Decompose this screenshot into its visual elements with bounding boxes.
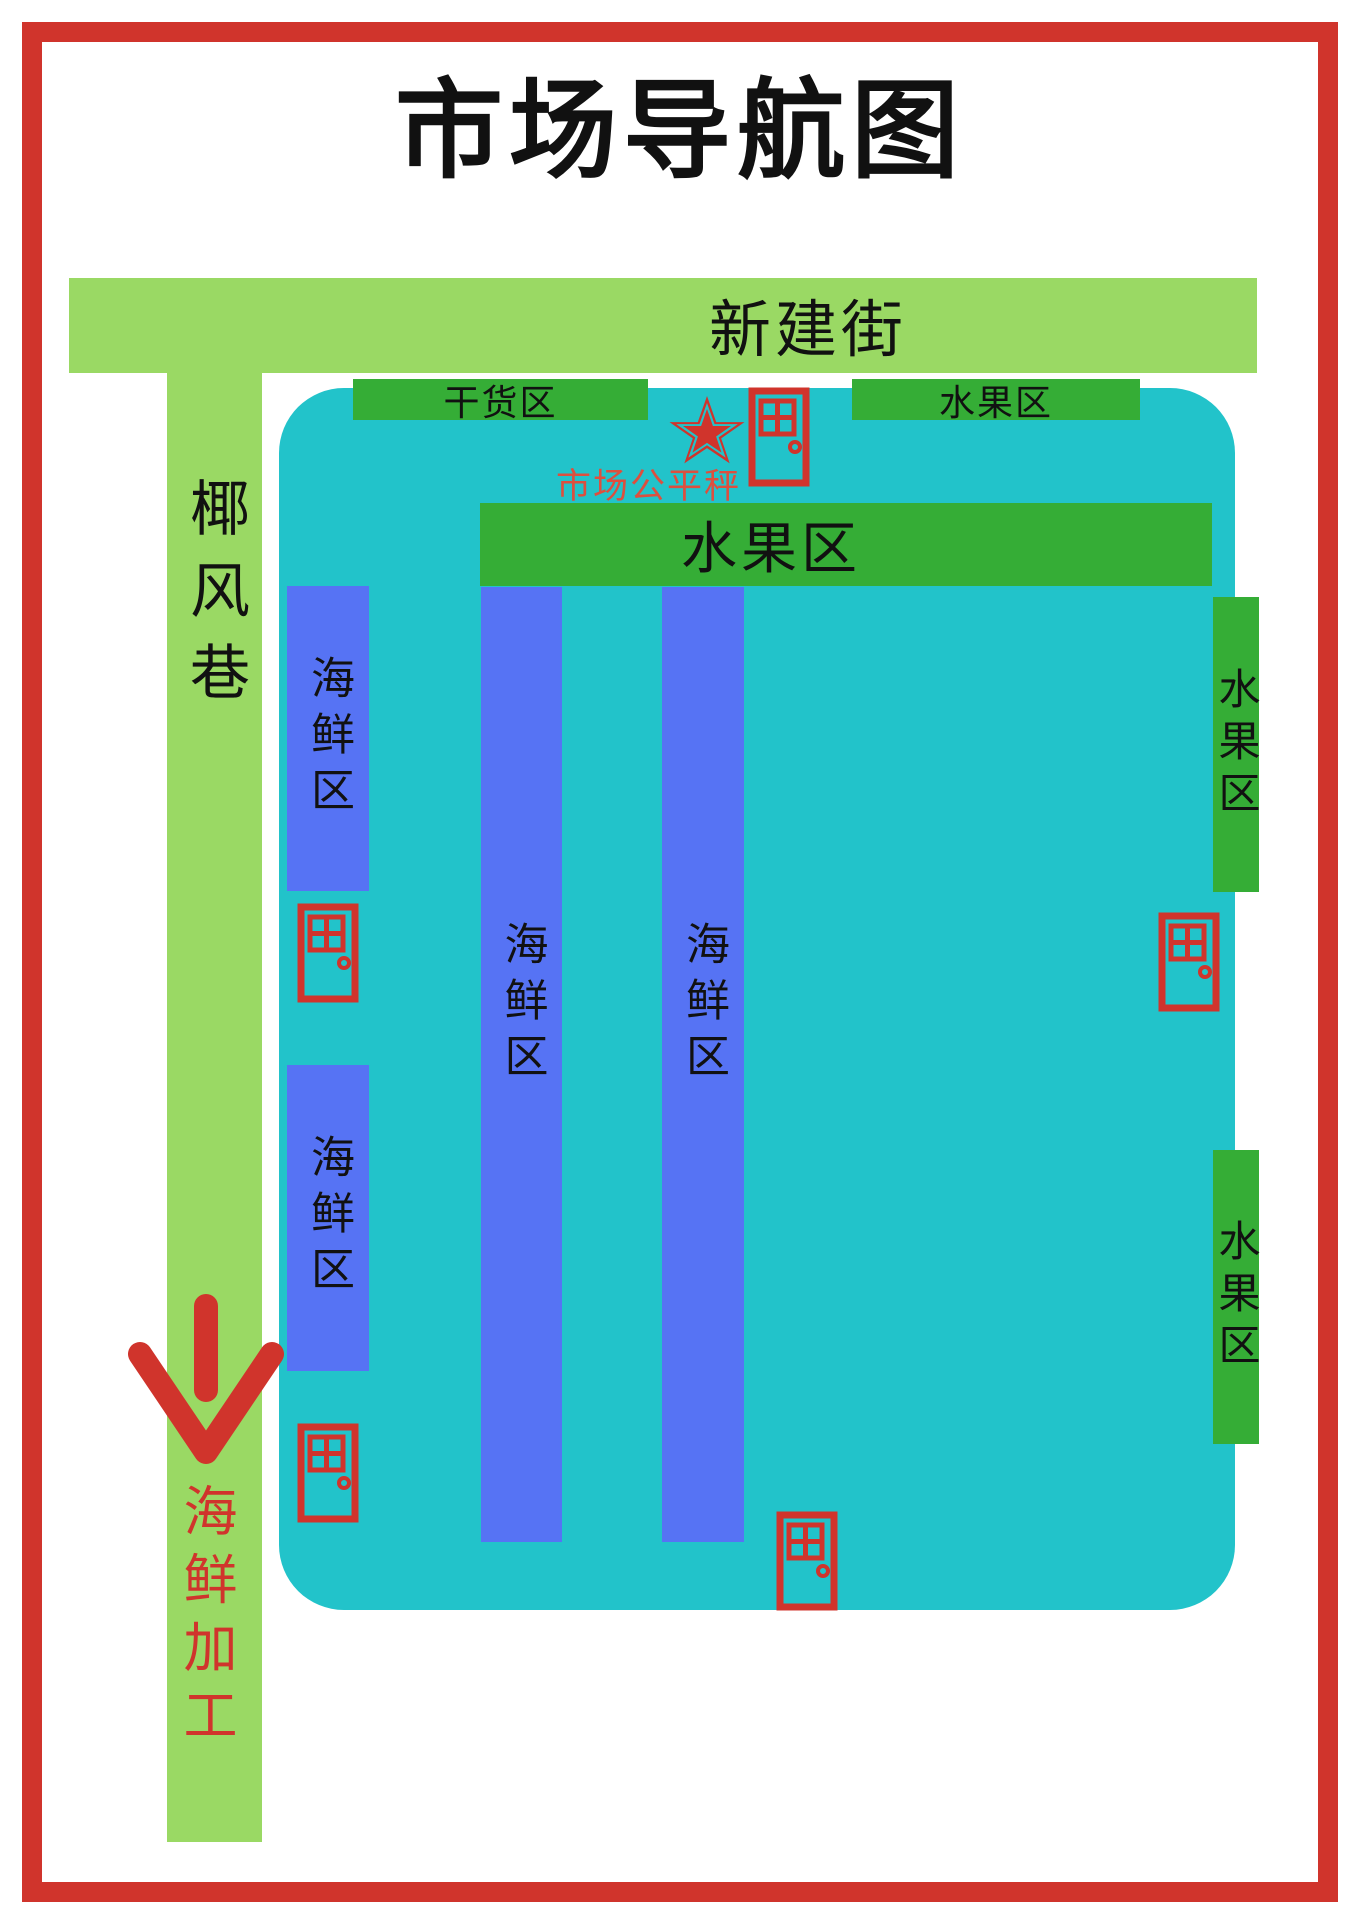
zone-fruit-right-lower-label: 水果区 bbox=[1215, 1219, 1257, 1375]
zone-seafood-mid-right: 海鲜区 bbox=[662, 587, 744, 1542]
zone-fruit-main-label: 水果区 bbox=[681, 504, 861, 585]
door-icon bbox=[776, 1511, 838, 1611]
zone-fruit-right-lower: 水果区 bbox=[1213, 1150, 1259, 1444]
street-yefeng-label: 椰风巷 bbox=[185, 477, 245, 723]
zone-seafood-left-lower: 海鲜区 bbox=[287, 1065, 369, 1371]
street-xinjian-label: 新建街 bbox=[709, 276, 907, 371]
zone-fruit-top-label: 水果区 bbox=[939, 374, 1053, 426]
door-icon bbox=[297, 1423, 359, 1523]
zone-fruit-right-upper: 水果区 bbox=[1213, 597, 1259, 892]
page-title: 市场导航图 bbox=[0, 44, 1360, 200]
door-icon bbox=[297, 903, 359, 1003]
zone-fruit-top: 水果区 bbox=[852, 379, 1140, 420]
zone-fruit-main: 水果区 bbox=[480, 503, 1212, 586]
zone-dry-goods-label: 干货区 bbox=[443, 374, 557, 426]
zone-seafood-mid-left: 海鲜区 bbox=[481, 587, 562, 1542]
door-icon bbox=[1158, 912, 1220, 1012]
down-arrow-icon bbox=[126, 1294, 286, 1466]
zone-seafood-left-lower-label: 海鲜区 bbox=[306, 1134, 350, 1302]
seafood-processing-label: 海鲜加工 bbox=[178, 1483, 232, 1755]
street-xinjian: 新建街 bbox=[69, 278, 1257, 373]
fair-scale-label: 市场公平秤 bbox=[556, 458, 741, 509]
door-icon bbox=[748, 387, 810, 487]
zone-seafood-mid-left-label: 海鲜区 bbox=[500, 921, 544, 1089]
zone-fruit-right-upper-label: 水果区 bbox=[1215, 667, 1257, 823]
zone-dry-goods: 干货区 bbox=[353, 379, 648, 420]
zone-seafood-left-upper-label: 海鲜区 bbox=[306, 655, 350, 823]
zone-seafood-mid-right-label: 海鲜区 bbox=[681, 921, 725, 1089]
zone-seafood-left-upper: 海鲜区 bbox=[287, 586, 369, 891]
market-map-page: 市场导航图 新建街 椰风巷 干货区 水果区 水果区 水果区 水果区 海鲜区 海鲜… bbox=[0, 0, 1360, 1924]
